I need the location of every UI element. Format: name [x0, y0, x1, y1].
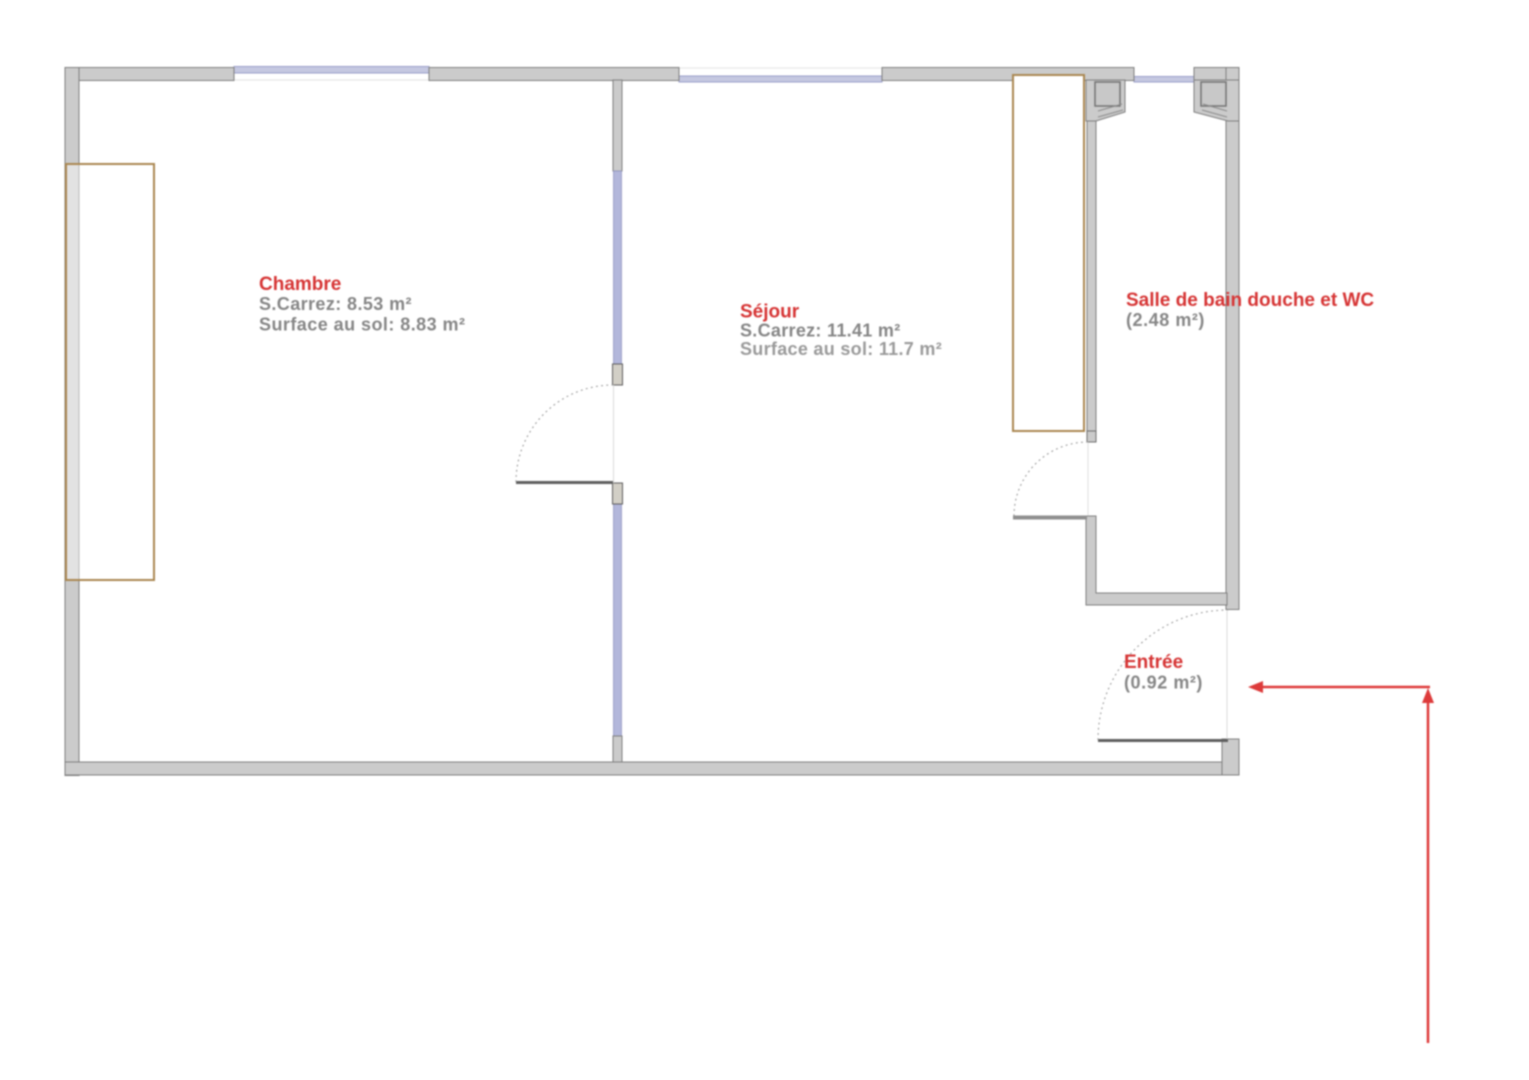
svg-text:Séjour: Séjour [740, 302, 800, 323]
svg-text:Surface au sol: 11.7 m²: Surface au sol: 11.7 m² [740, 339, 942, 359]
svg-text:Chambre: Chambre [259, 274, 341, 295]
svg-text:Surface au sol: 8.83 m²: Surface au sol: 8.83 m² [259, 315, 465, 335]
svg-text:Salle de bain douche et WC: Salle de bain douche et WC [1126, 290, 1374, 311]
svg-text:(2.48 m²): (2.48 m²) [1126, 310, 1205, 330]
svg-text:Entrée: Entrée [1124, 652, 1183, 673]
svg-text:S.Carrez: 11.41 m²: S.Carrez: 11.41 m² [740, 321, 900, 341]
svg-text:(0.92 m²): (0.92 m²) [1124, 673, 1203, 693]
svg-text:S.Carrez: 8.53 m²: S.Carrez: 8.53 m² [259, 294, 412, 314]
